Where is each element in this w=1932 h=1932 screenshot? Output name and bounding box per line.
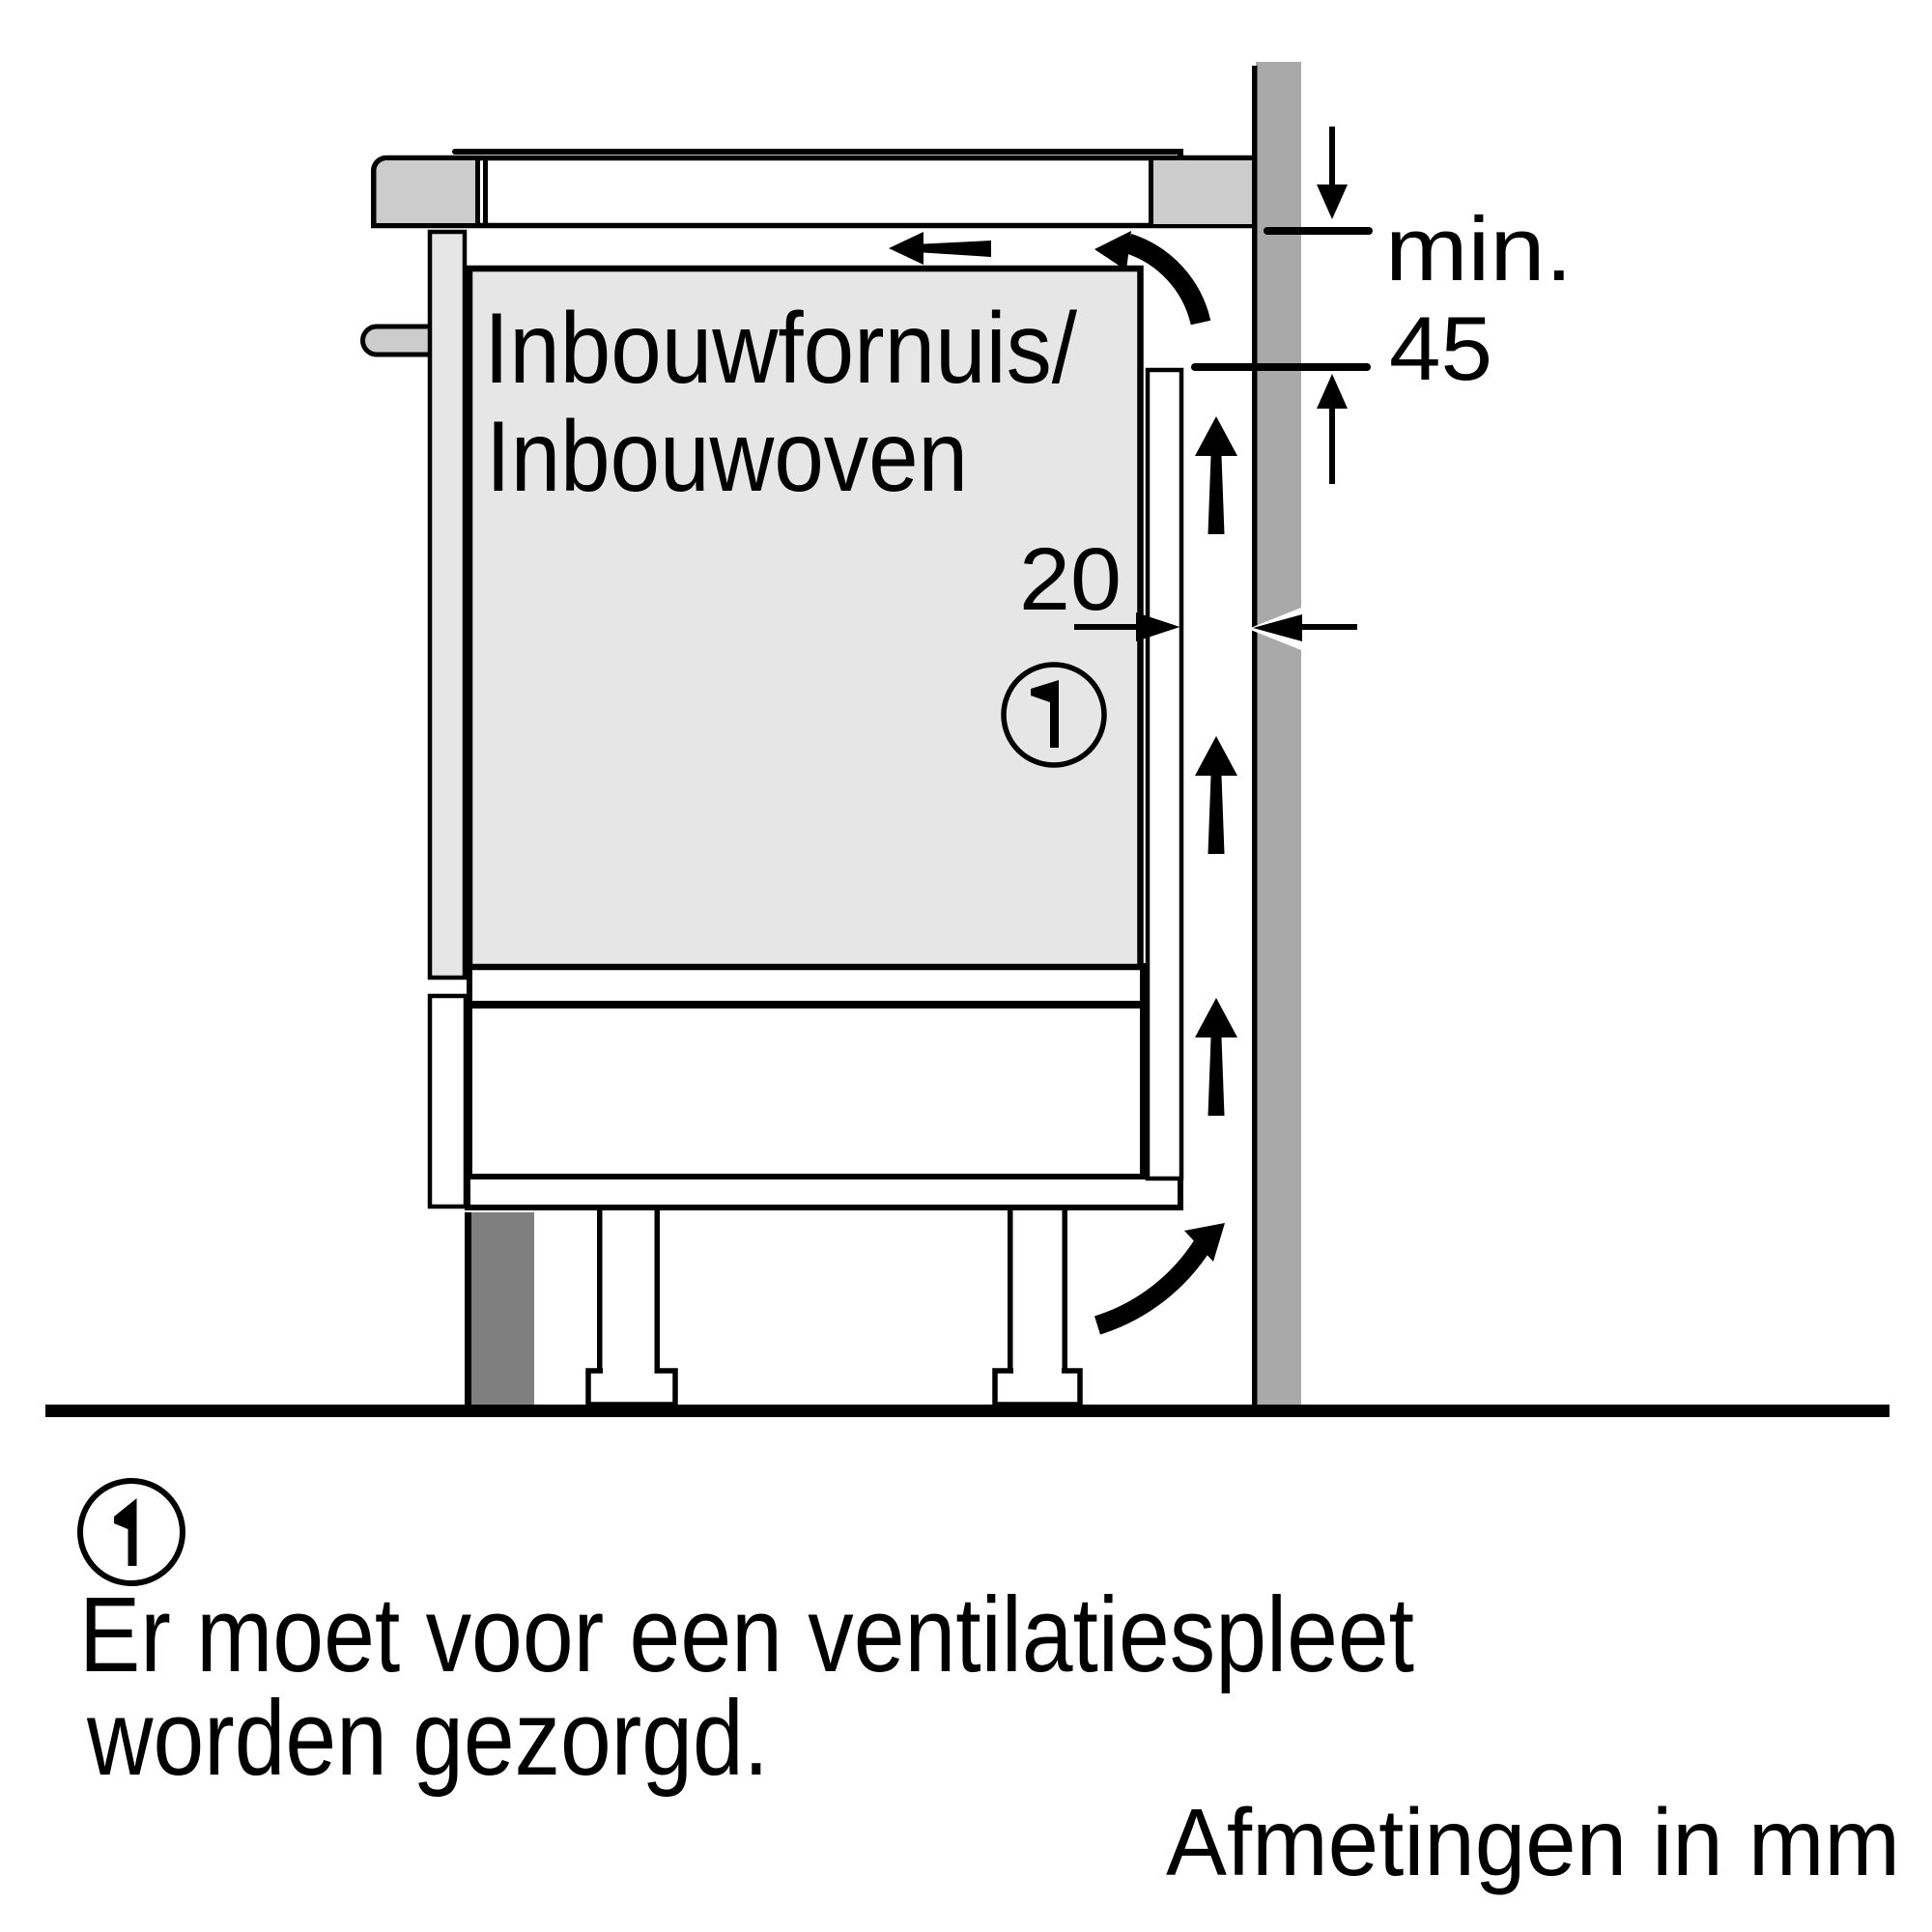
svg-text:Inbouwfornuis/: Inbouwfornuis/	[484, 293, 1077, 405]
svg-text:20: 20	[1019, 530, 1122, 629]
svg-text:min.: min.	[1385, 198, 1573, 299]
svg-text:45: 45	[1389, 298, 1492, 399]
svg-text:Afmetingen in mm: Afmetingen in mm	[1166, 1789, 1900, 1895]
svg-text:worden gezorgd.: worden gezorgd.	[86, 1679, 769, 1798]
svg-text:Inbouwoven: Inbouwoven	[486, 401, 968, 513]
svg-text:Er moet voor een ventilatiespl: Er moet voor een ventilatiespleet	[79, 1576, 1414, 1694]
